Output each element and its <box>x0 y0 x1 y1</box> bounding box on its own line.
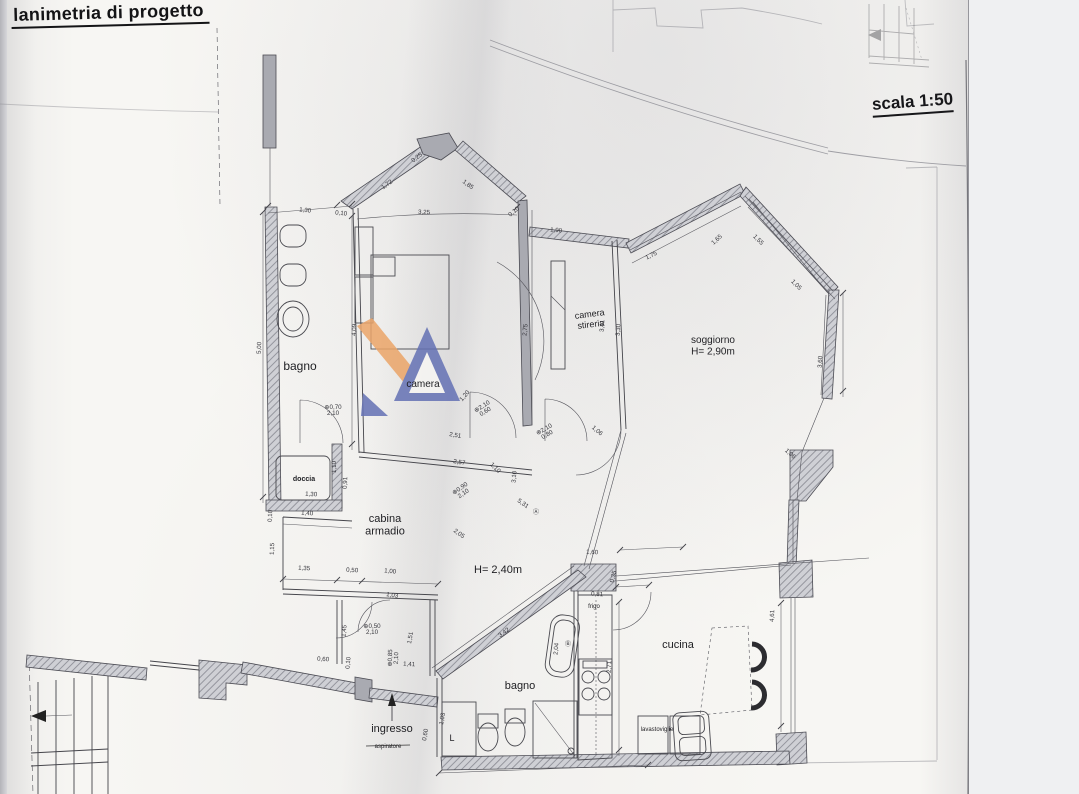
room-label: frigo <box>588 604 600 610</box>
dimension-label: 0,10 <box>267 509 274 522</box>
bathtub <box>544 613 581 678</box>
wardrobe <box>355 227 373 323</box>
room-label: aspiratore <box>375 744 402 750</box>
dimension-label: ⊕0,502,10 <box>363 623 381 636</box>
dimension-label: 1,60 <box>586 549 599 557</box>
washing-machine <box>442 702 476 756</box>
floor-plan-drawing: bagnocameradocciacabinaarmadiocamerastir… <box>0 0 1079 794</box>
dimension-label: 1,10 <box>488 461 502 475</box>
watermark-logo <box>357 318 460 416</box>
dimension-label: 1,30 <box>305 491 318 499</box>
dimension-label: 1,30 <box>299 206 312 214</box>
bathroom1-fixtures <box>277 225 309 337</box>
dimension-label: 1,00 <box>384 567 397 575</box>
dimension-label: 1,03 <box>438 712 447 726</box>
room-label: H= 2,40m <box>474 564 522 576</box>
room-label: cabinaarmadio <box>365 513 405 538</box>
dimension-label: 2,71 <box>606 660 613 673</box>
dimension-label: Ⓑ <box>565 640 571 648</box>
dimension-label: 2,75 <box>521 323 529 336</box>
dimension-label: 4,61 <box>769 609 776 622</box>
dimension-label: ⊕0,902,10 <box>451 481 473 502</box>
dimension-label: 1,55 <box>751 233 765 247</box>
dimension-label: 3,41 <box>599 319 607 332</box>
dimension-label: 1,51 <box>406 631 415 645</box>
watermark-blue-wedge <box>361 393 388 416</box>
dimension-label: 5,00 <box>256 341 263 354</box>
dimension-label: 1,45 <box>340 624 348 637</box>
radiator-arcs <box>751 644 765 708</box>
dimension-label: 3,10 <box>510 470 518 483</box>
room-label: cucina <box>662 639 695 651</box>
kitchen-counter <box>578 595 612 760</box>
dimension-label: 1,35 <box>298 565 311 573</box>
room-label: bagno <box>283 359 317 373</box>
room-label: soggiornoH= 2,90m <box>691 335 735 358</box>
dimension-label: 0,50 <box>346 567 359 575</box>
room-label: camera <box>406 379 440 390</box>
dimension-label: 0,60 <box>421 728 430 742</box>
dimension-label: 1,40 <box>301 510 314 518</box>
dimension-label: 0,10 <box>344 656 352 669</box>
dimension-label: 1,06 <box>590 424 604 437</box>
room-label: L <box>449 733 454 743</box>
stairs-top-right <box>868 4 929 67</box>
scanned-floor-plan-page: bagnocameradocciacabinaarmadiocamerastir… <box>0 0 1079 794</box>
dimension-label: 2,51 <box>449 431 463 440</box>
dimension-label: 1,03 <box>386 591 400 600</box>
strikethrough-line <box>366 745 410 746</box>
table-dashed-outline <box>700 626 752 715</box>
dimension-label: 2,05 <box>452 527 466 540</box>
stair-direction-arrow-icon <box>31 710 46 722</box>
dimension-label: ⊕0,702,10 <box>324 404 342 417</box>
dimension-label: 0,10 <box>335 209 348 217</box>
dimension-label: 0,91 <box>342 476 349 489</box>
dimension-label: 1,41 <box>403 661 416 669</box>
dimension-label: 3,30 <box>615 323 623 336</box>
dimension-label: 0,60 <box>317 656 330 664</box>
dimension-label: 1,05 <box>789 278 803 292</box>
dimension-label: 1,10 <box>331 460 338 473</box>
dimension-label: 3,25 <box>418 209 431 216</box>
dimension-label: 2,57 <box>453 458 467 467</box>
room-label: doccia <box>293 476 315 483</box>
dimension-label: ⊕0,852,10 <box>387 649 401 667</box>
ironing-board <box>551 261 565 369</box>
dimension-label: 5,31 <box>516 497 530 510</box>
dimension-label: 1,90 <box>550 226 563 234</box>
dimension-label: 3,60 <box>817 355 825 368</box>
dimension-label: 0,81 <box>591 591 604 599</box>
dimension-label: 1,15 <box>269 542 276 555</box>
dimension-label: 2,04 <box>552 642 560 655</box>
stairwell-bottom-left <box>26 655 247 794</box>
dimension-label: ⊕2,100,80 <box>535 422 557 442</box>
room-label: ingresso <box>371 723 413 735</box>
dimension-label: 4,09 <box>351 323 358 336</box>
dimension-label: 1,65 <box>710 233 724 247</box>
dishwasher-cabinets <box>638 716 700 754</box>
dimension-label: Ⓐ <box>533 508 539 516</box>
dimension-label: 1,75 <box>644 250 658 262</box>
room-label: lavastoviglie <box>641 727 674 733</box>
dimension-label: ⊕2,100,60 <box>473 399 495 419</box>
shower-box <box>533 701 577 758</box>
room-label: bagno <box>505 680 536 692</box>
dimension-label: 1,85 <box>461 178 475 191</box>
